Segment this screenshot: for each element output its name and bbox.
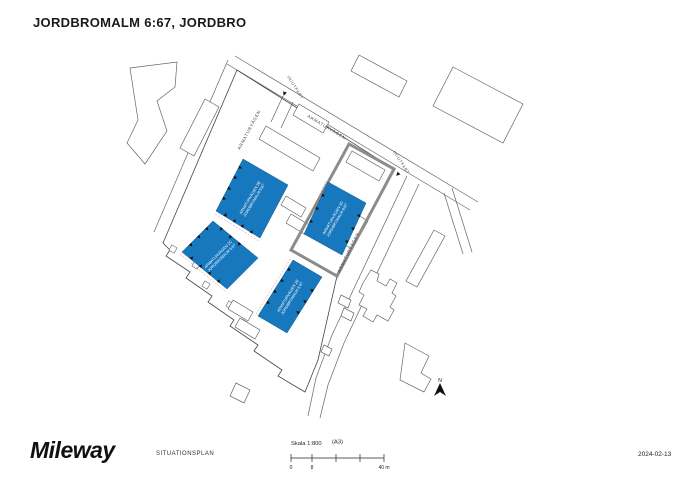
building-1: ARMATURVÄGEN 2B JORDBROMALM 6:67 — [216, 159, 288, 238]
street-armaturvagen-top: ARMATURVÄGEN — [306, 114, 347, 141]
site-plan-map: ARMATURVÄGEN 2B JORDBROMALM 6:67 ARMATUR… — [0, 0, 700, 490]
scale-tick-8: 8 — [311, 465, 314, 471]
street-armaturvagen-left: ARMATURVÄGEN — [236, 109, 261, 150]
north-label: N — [438, 378, 442, 384]
building-4-highlighted: ARMATURVÄGEN 2D JORDBROMALM 6:67 — [304, 182, 366, 255]
entrance-label-right: IN/UTFART — [392, 150, 411, 175]
scale-label: Skala 1:800 — [291, 441, 322, 447]
scale-tick-40m: 40 m — [378, 465, 389, 471]
mileway-logo: Mileway — [30, 437, 115, 464]
situationsplan-page: JORDBROMALM 6:67, JORDBRO — [0, 0, 700, 490]
scale-tick-0: 0 — [290, 465, 293, 471]
building-2: ARMATURVÄGEN 2C JORDBROMALM 6:67 — [182, 221, 258, 289]
paper-size-label: (A3) — [332, 440, 343, 446]
north-arrow: N — [434, 378, 446, 396]
drawing-type-label: SITUATIONSPLAN — [156, 451, 214, 457]
building-3: ARMATURVÄGEN 2E JORDBROMALM 6:67 — [258, 260, 322, 333]
entrance-label-top: IN/UTFART — [286, 75, 305, 100]
document-date: 2024-02-13 — [638, 451, 671, 458]
scale-bar: Skala 1:800 (A3) 0 8 40 m — [286, 436, 406, 472]
